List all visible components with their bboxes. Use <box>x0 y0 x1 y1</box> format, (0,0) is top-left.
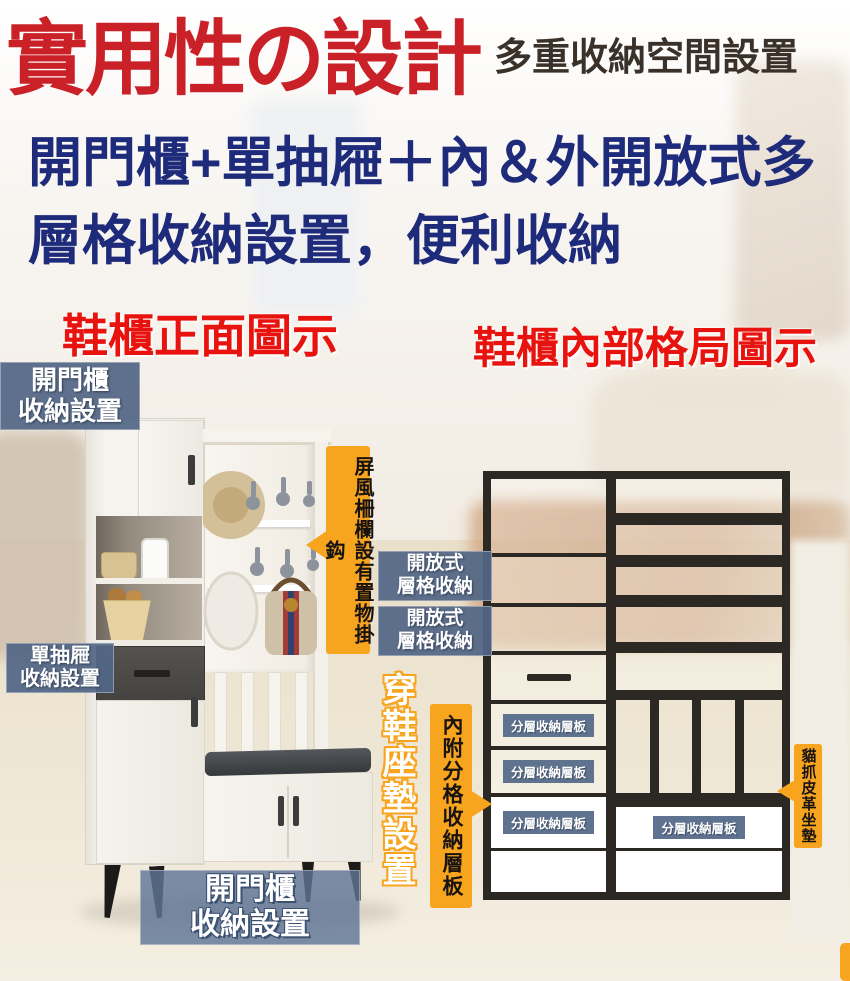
cabinet-top-door-handle <box>188 455 195 485</box>
diagram-frame-left <box>483 471 491 900</box>
cabinet-bottom-door-handle <box>191 697 198 727</box>
callout-line: 層格收納 <box>379 631 491 654</box>
callout-open-shelf-2: 開放式 層格收納 <box>378 606 492 656</box>
diagram-right-shelf <box>616 479 782 513</box>
shelf-board-label: 分層收納層板 <box>503 811 594 834</box>
background-chair <box>0 430 90 660</box>
bench-door-split <box>287 786 289 858</box>
callout-line: 開放式 <box>379 553 491 576</box>
shelf-board-label: 分層收納層板 <box>653 816 744 839</box>
cabinet-shelf-board <box>96 578 202 584</box>
diagram-thick-shelf <box>616 642 782 653</box>
intro-line-1: 開門櫃+單抽屜＋內＆外開放式多 <box>28 118 816 197</box>
interior-view-title: 鞋櫃內部格局圖示 <box>473 314 817 376</box>
diagram-thick-shelf <box>616 513 782 525</box>
diagram-right-shelf <box>616 653 782 690</box>
callout-bottom-door-cabinet: 開門櫃 收納設置 <box>140 870 360 945</box>
diagram-seat-board <box>616 793 782 807</box>
callout-screen-hooks: 屏風柵欄設有置物掛鈎 <box>326 446 370 654</box>
slot-divider <box>650 700 659 793</box>
callout-line: 收納設置 <box>141 908 359 943</box>
diagram-left-open-top <box>491 479 606 553</box>
callout-open-shelf-1: 開放式 層格收納 <box>378 551 492 601</box>
callout-divided-shelf: 內附分格收納層板 <box>430 704 472 908</box>
diagram-right-shelf <box>616 607 782 642</box>
diagram-thick-shelf <box>616 555 782 567</box>
shelf-board-label: 分層收納層板 <box>503 714 594 737</box>
cabinet-bottom-door <box>96 700 205 864</box>
intro-line-2: 層格收納設置，便利收納 <box>28 196 622 275</box>
callout-single-drawer: 單抽屜 收納設置 <box>6 643 114 693</box>
diagram-shelf-cell: 分層收納層板 <box>491 750 606 793</box>
screen-slat <box>214 672 227 760</box>
callout-line: 層格收納 <box>379 576 491 599</box>
bench-cushion <box>205 748 371 776</box>
callout-line: 開放式 <box>379 608 491 631</box>
diagram-frame-top <box>483 471 790 479</box>
slot-divider <box>735 700 744 793</box>
screen-slat <box>295 672 308 760</box>
interior-layout-diagram: 分層收納層板 分層收納層板 分層收納層板 分層收納層板 <box>483 471 790 900</box>
diagram-right-shelf <box>616 567 782 595</box>
callout-line: 收納設置 <box>1 396 139 427</box>
diagram-shelf-cell: 分層收納層板 <box>491 797 606 848</box>
shelf-board-label: 分層收納層板 <box>503 760 594 783</box>
basket-small <box>101 552 137 580</box>
diagram-left-open-shelf-1 <box>491 557 606 603</box>
page-title: 實用性の設計 <box>6 0 480 111</box>
diagram-drawer-cell <box>491 655 606 700</box>
diagram-thick-shelf <box>616 690 782 700</box>
marketing-page: 分層收納層板 分層收納層板 分層收納層板 分層收納層板 <box>0 0 850 981</box>
diagram-vertical-slots <box>616 700 782 793</box>
background-stairs <box>735 60 850 340</box>
bench-right-handle <box>293 796 299 826</box>
diagram-frame-right <box>782 471 790 900</box>
background-stair-base <box>790 540 850 940</box>
bench-left-handle <box>278 796 284 826</box>
callout-cat-leather-seat: 貓抓皮革坐墊 <box>794 744 822 848</box>
diagram-shelf-cell: 分層收納層板 <box>616 807 782 848</box>
callout-line: 開門櫃 <box>1 365 139 396</box>
cat-leather-seat-arrow <box>777 780 795 802</box>
screen-slat <box>241 672 254 760</box>
screen-slat <box>268 672 281 760</box>
diagram-shelf-cell: 分層收納層板 <box>491 704 606 746</box>
diagram-thick-shelf <box>616 595 782 607</box>
callout-line: 開門櫃 <box>141 873 359 908</box>
page-subtitle: 多重收納空間設置 <box>494 26 798 81</box>
diagram-right-shelf <box>616 525 782 555</box>
callout-line: 單抽屜 <box>7 645 113 668</box>
callout-seat-cushion: 穿鞋座墊設置 <box>372 672 421 892</box>
slot-divider <box>692 700 701 793</box>
diagram-bottom-cell <box>616 851 782 892</box>
diagram-bottom-cell <box>491 851 606 892</box>
cabinet-drawer-handle <box>134 670 170 677</box>
callout-line: 收納設置 <box>7 668 113 691</box>
lantern <box>141 538 169 582</box>
divided-shelf-arrow <box>470 790 492 818</box>
callout-top-door-cabinet: 開門櫃 收納設置 <box>0 362 140 430</box>
front-view-title: 鞋櫃正面圖示 <box>62 300 338 366</box>
diagram-frame-bottom <box>483 892 790 900</box>
diagram-drawer-handle <box>527 674 571 681</box>
diagram-left-open-shelf-2 <box>491 607 606 651</box>
edge-orange-tab <box>840 943 850 981</box>
diagram-frame-middle <box>606 471 616 900</box>
